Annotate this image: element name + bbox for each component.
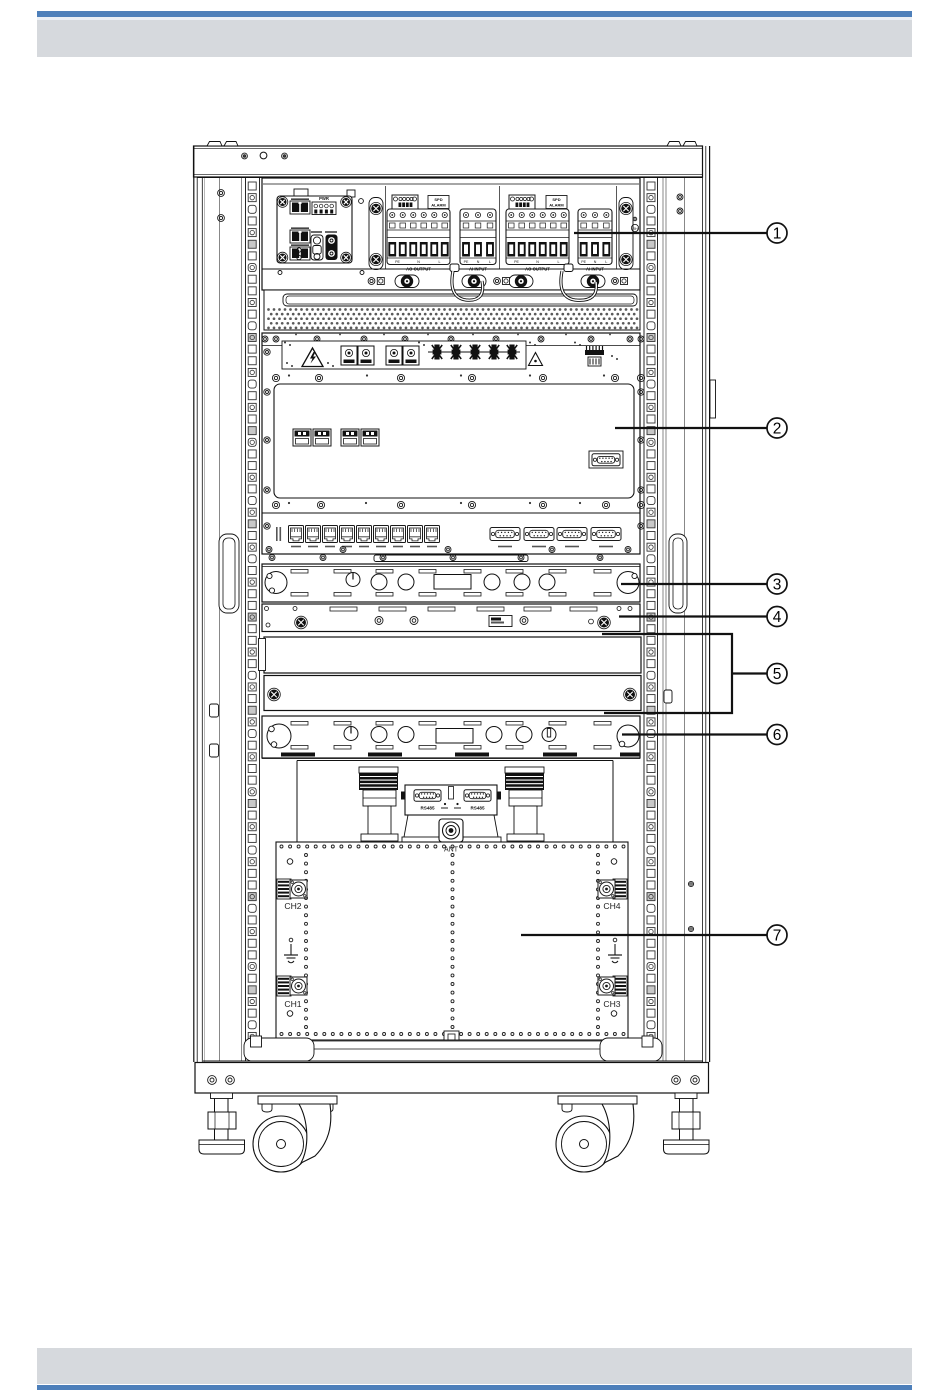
svg-text:CH1: CH1 — [284, 999, 301, 1009]
svg-text:AO OUTPUT: AO OUTPUT — [525, 267, 550, 272]
svg-text:4: 4 — [773, 609, 782, 626]
svg-text:ALARM: ALARM — [431, 203, 446, 208]
svg-text:RS485: RS485 — [470, 806, 484, 811]
svg-text:ALARM: ALARM — [549, 203, 564, 208]
svg-text:AI INPUT: AI INPUT — [586, 267, 604, 272]
svg-text:L: L — [489, 260, 491, 264]
svg-text:L: L — [558, 260, 560, 264]
svg-text:7: 7 — [773, 928, 782, 945]
svg-text:2: 2 — [773, 421, 782, 438]
svg-text:3: 3 — [773, 577, 782, 594]
svg-text:CH3: CH3 — [603, 999, 620, 1009]
svg-text:CH4: CH4 — [603, 901, 620, 911]
svg-text:CH2: CH2 — [284, 901, 301, 911]
svg-text:N: N — [477, 260, 480, 264]
svg-text:AI INPUT: AI INPUT — [469, 267, 487, 272]
svg-text:RS485: RS485 — [420, 806, 434, 811]
svg-text:AO OUTPUT: AO OUTPUT — [406, 267, 431, 272]
svg-text:N: N — [417, 260, 420, 264]
svg-text:PE: PE — [464, 260, 469, 264]
svg-text:PE: PE — [581, 260, 586, 264]
svg-text:RH: RH — [632, 226, 638, 231]
svg-text:N: N — [594, 260, 597, 264]
svg-text:L: L — [439, 260, 441, 264]
svg-text:SPD: SPD — [434, 197, 442, 202]
svg-text:PE: PE — [514, 260, 519, 264]
svg-text:L: L — [605, 260, 607, 264]
svg-text:1: 1 — [773, 226, 782, 243]
svg-text:5: 5 — [773, 666, 782, 683]
svg-text:6: 6 — [773, 727, 782, 744]
svg-text:N: N — [536, 260, 539, 264]
svg-text:SPD: SPD — [552, 197, 560, 202]
svg-text:PWR: PWR — [319, 196, 329, 201]
svg-text:PE: PE — [395, 260, 400, 264]
